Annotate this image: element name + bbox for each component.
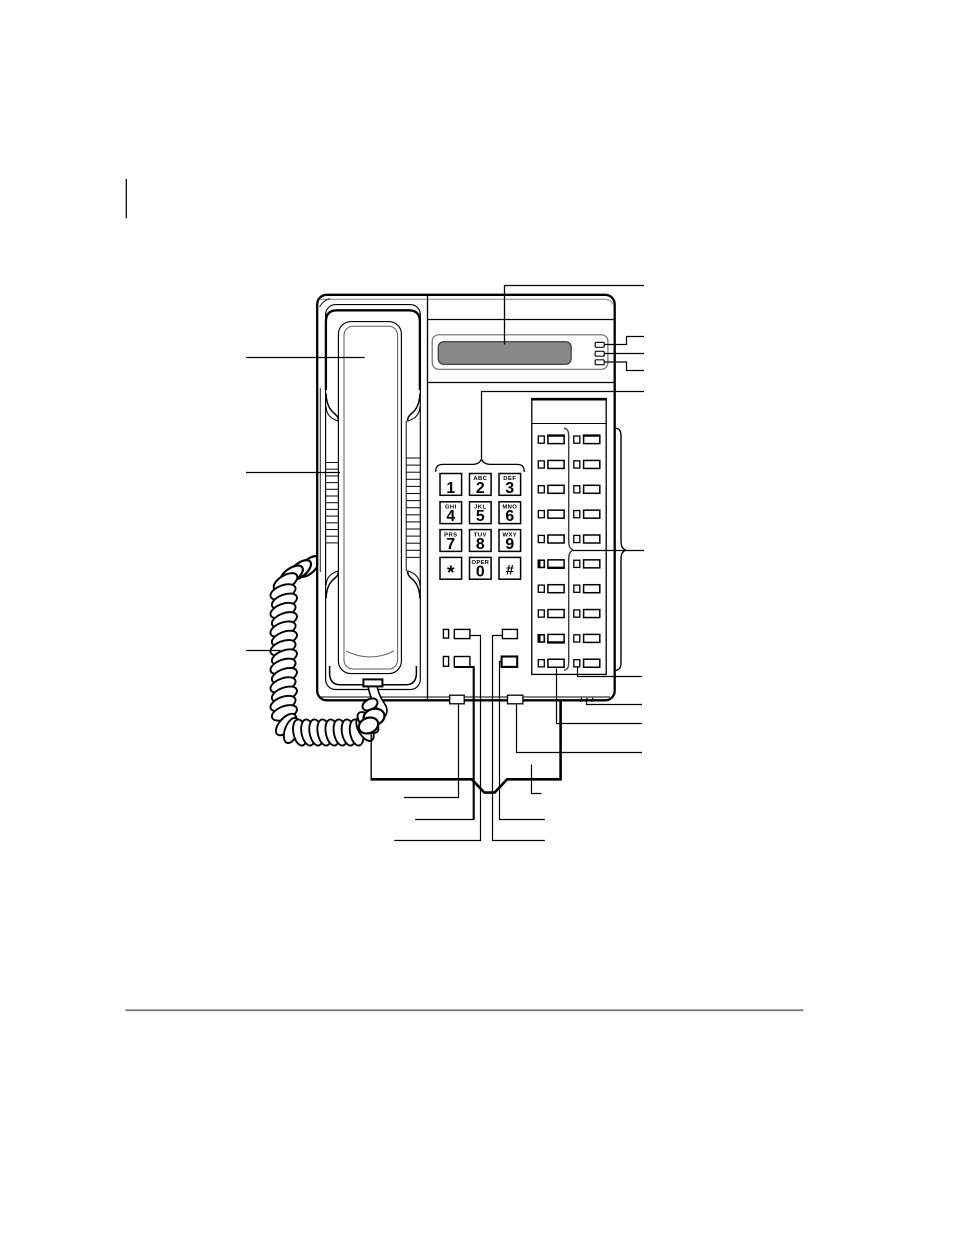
svg-text:3: 3 <box>505 480 514 497</box>
svg-text:8: 8 <box>476 536 485 553</box>
svg-text:*: * <box>447 562 455 584</box>
svg-text:#: # <box>506 563 514 579</box>
svg-text:9: 9 <box>505 536 514 553</box>
svg-text:5: 5 <box>476 508 485 525</box>
svg-text:7: 7 <box>446 536 455 553</box>
svg-text:2: 2 <box>476 480 485 497</box>
svg-text:6: 6 <box>505 508 514 525</box>
svg-text:1: 1 <box>446 480 455 497</box>
svg-text:4: 4 <box>446 508 455 525</box>
svg-text:0: 0 <box>476 564 485 581</box>
